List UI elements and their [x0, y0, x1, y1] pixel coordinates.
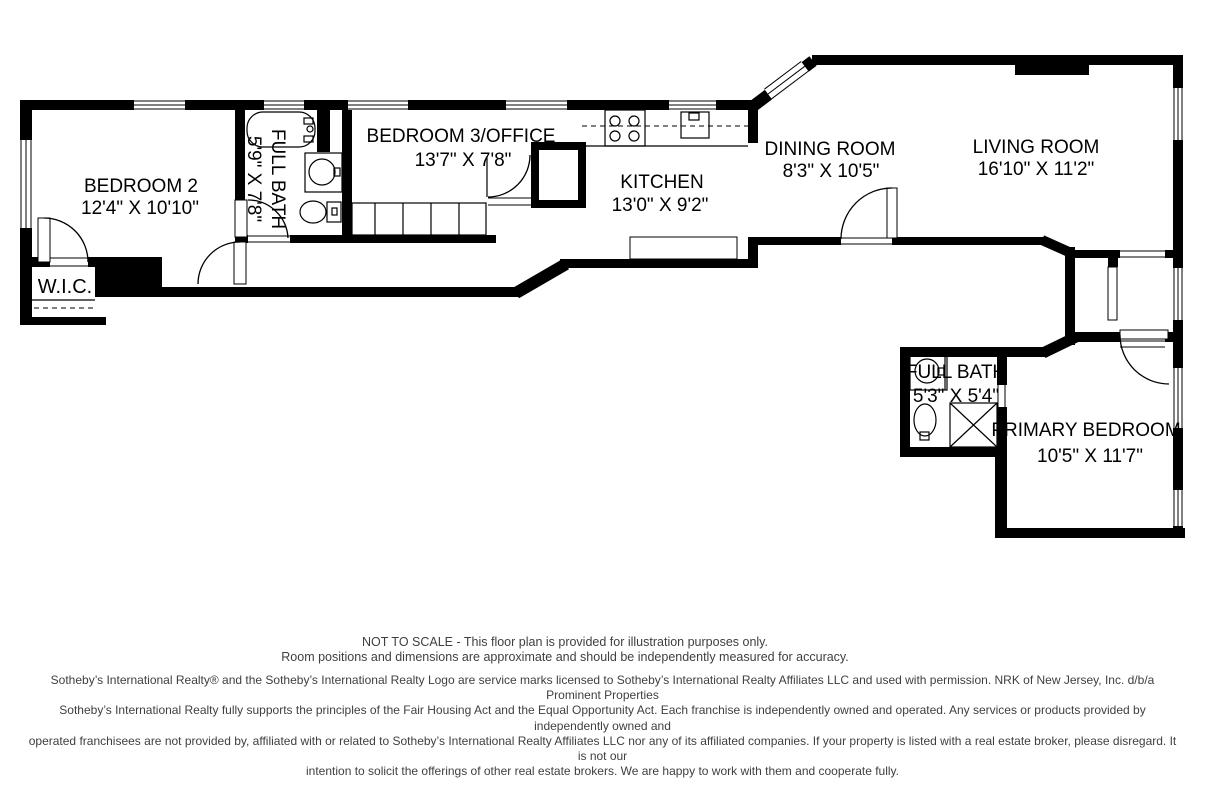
room-label-kitchen: KITCHEN [620, 172, 703, 193]
legal-line4: intention to solicit the offerings of ot… [25, 764, 1180, 779]
kitchen-counter [582, 126, 748, 146]
room-dims-dining: 8'3" X 10'5" [783, 161, 880, 182]
room-dims-kitchen: 13'0" X 9'2" [612, 195, 709, 216]
room-label-living: LIVING ROOM [973, 137, 1100, 158]
room-dims-bath2: 5'3" X 5'4" [913, 386, 999, 407]
wic-door-icon [38, 218, 88, 267]
closet-shelf-lines [32, 300, 95, 308]
room-label-dining: DINING ROOM [765, 139, 896, 160]
room-label-bath2: FULL BATH [906, 362, 1006, 383]
primary-door-icon [1120, 330, 1169, 384]
bedroom2-door-icon [198, 242, 246, 284]
window-icon [669, 100, 716, 110]
room-dims-bath1: 5'9" X 7'8" [243, 136, 264, 222]
legal-disclaimer: Sotheby’s International Realty® and the … [25, 673, 1180, 779]
scale-disclaimer-line1: NOT TO SCALE - This floor plan is provid… [0, 635, 1130, 650]
window-icon [1173, 88, 1183, 140]
room-dims-bedroom3: 13'7" X 7'8" [415, 150, 512, 171]
walls [20, 55, 1185, 538]
room-label-bedroom2: BEDROOM 2 [84, 176, 198, 197]
kitchen-island [630, 237, 737, 259]
window-icon [134, 100, 185, 110]
window-icon [348, 100, 408, 110]
toilet-icon [300, 201, 341, 223]
window-icon [264, 100, 304, 110]
room-label-wic: W.I.C. [38, 276, 92, 298]
room-dims-primary: 10'5" X 11'7" [1037, 446, 1143, 467]
room-dims-living: 16'10" X 11'2" [978, 159, 1095, 180]
legal-line3: operated franchisees are not provided by… [25, 734, 1180, 764]
scale-disclaimer-line2: Room positions and dimensions are approx… [0, 650, 1130, 665]
toilet-icon [914, 404, 936, 440]
window-icon [20, 140, 32, 228]
kitchen-sink-icon [681, 112, 709, 138]
window-icon [506, 100, 567, 110]
window-icon [1173, 268, 1183, 320]
window-icon [764, 61, 809, 100]
floorplan-page: BEDROOM 2 12'4" X 10'10" FULL BATH 5'9" … [0, 0, 1206, 786]
closet-icon [352, 203, 486, 235]
legal-line1: Sotheby’s International Realty® and the … [25, 673, 1180, 703]
sink-icon [305, 153, 342, 192]
window-icon [1173, 490, 1183, 526]
floorplan-drawing: BEDROOM 2 12'4" X 10'10" FULL BATH 5'9" … [0, 0, 1206, 786]
stove-icon [605, 110, 645, 146]
room-label-bedroom3: BEDROOM 3/OFFICE [367, 126, 556, 147]
scale-disclaimer: NOT TO SCALE - This floor plan is provid… [0, 635, 1130, 665]
dining-door-icon [841, 188, 897, 245]
legal-line2: Sotheby’s International Realty fully sup… [25, 703, 1180, 733]
room-label-bath1: FULL BATH [267, 129, 288, 229]
window-icon [1173, 368, 1183, 428]
room-dims-bedroom2: 12'4" X 10'10" [81, 198, 199, 219]
shower-icon [950, 403, 997, 447]
room-label-primary: PRIMARY BEDROOM [991, 420, 1180, 441]
